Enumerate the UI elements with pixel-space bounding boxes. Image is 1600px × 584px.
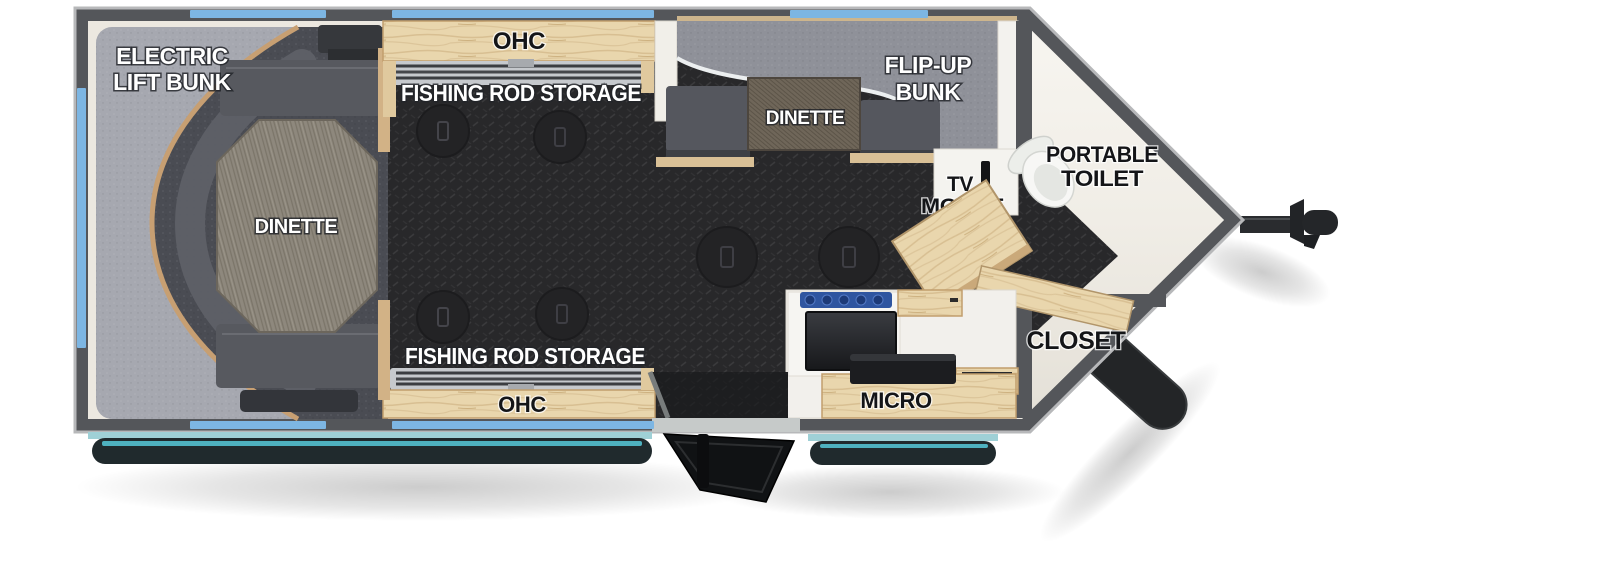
rack-end-block bbox=[641, 61, 654, 93]
rack-clip bbox=[508, 59, 534, 67]
rod-storage-bottom-label: FISHING ROD STORAGE bbox=[405, 343, 645, 369]
entry-step-texture bbox=[650, 372, 788, 418]
counter-handle bbox=[950, 298, 958, 302]
bench-base bbox=[666, 150, 750, 158]
awning-rail-right bbox=[808, 434, 998, 441]
floor-recess bbox=[417, 105, 469, 157]
micro-label: MICRO bbox=[860, 388, 932, 413]
window-strip-bottom-rear bbox=[190, 421, 326, 429]
counter bbox=[898, 290, 962, 316]
front-dinette-bench-left bbox=[666, 86, 750, 152]
microwave-top bbox=[850, 354, 956, 361]
electric-lift-bunk-label-line2: LIFT BUNK bbox=[113, 69, 232, 95]
floor-recess bbox=[536, 288, 588, 340]
rear-dinette-label: DINETTE bbox=[255, 216, 338, 238]
hitch-flange bbox=[1290, 199, 1304, 244]
flip-up-bunk-label-line2: BUNK bbox=[896, 79, 962, 105]
entry-area bbox=[650, 372, 800, 432]
floor-recess bbox=[697, 227, 757, 287]
trailer-body: ELECTRIC LIFT BUNK DINETTE OHC FISHING R… bbox=[75, 8, 1243, 432]
front-dinette-label: DINETTE bbox=[766, 108, 844, 129]
hitch-coupler bbox=[1302, 210, 1338, 235]
bunk-headrest-shadow bbox=[328, 49, 382, 60]
floor-recess bbox=[417, 291, 469, 343]
flip-up-bunk-label-line1: FLIP-UP bbox=[885, 52, 972, 78]
rack-end-block bbox=[383, 61, 396, 117]
entry-threshold bbox=[652, 418, 800, 432]
awning-rollers bbox=[88, 432, 998, 465]
kitchen-area: MICRO bbox=[786, 290, 1018, 418]
awning-roller-highlight bbox=[102, 441, 642, 446]
bunk-headrest bbox=[318, 25, 382, 53]
floorplan-image: ELECTRIC LIFT BUNK DINETTE OHC FISHING R… bbox=[0, 0, 1600, 584]
window-strip-bottom-center bbox=[392, 421, 654, 429]
window-strip-top-center bbox=[392, 10, 654, 18]
flip-up-bunk-area: FLIP-UP BUNK DINETTE bbox=[656, 16, 1018, 167]
ohc-bottom-label: OHC bbox=[498, 392, 546, 417]
floor-recess bbox=[819, 227, 879, 287]
window-strip-top-front bbox=[790, 10, 928, 18]
hitch-latch bbox=[1304, 235, 1320, 249]
floor-recess bbox=[534, 111, 586, 163]
portable-toilet-label-line2: TOILET bbox=[1061, 166, 1144, 191]
electric-lift-bunk-label-line1: ELECTRIC bbox=[116, 43, 228, 69]
window-strip-rear-wall bbox=[77, 88, 86, 348]
entry-door-hinge bbox=[697, 434, 709, 488]
bench-floor-trim bbox=[656, 157, 754, 167]
portable-toilet-label-line1: PORTABLE bbox=[1046, 142, 1158, 167]
floorplan-svg: ELECTRIC LIFT BUNK DINETTE OHC FISHING R… bbox=[0, 0, 1600, 584]
partition-wall-upper bbox=[1016, 21, 1032, 149]
window-strip-top-rear bbox=[190, 10, 326, 18]
bench-floor-trim bbox=[850, 153, 942, 163]
awning-roller-highlight bbox=[820, 444, 988, 448]
front-wardrobe bbox=[998, 21, 1018, 149]
partition-wall-lower bbox=[1016, 296, 1032, 418]
ohc-top-label: OHC bbox=[493, 28, 545, 55]
bunk-footrest bbox=[240, 390, 358, 412]
awning-rail-left bbox=[88, 432, 652, 439]
bunk-side-trim bbox=[378, 300, 390, 400]
front-dinette-bench-right bbox=[860, 100, 940, 152]
rod-storage-top-label: FISHING ROD STORAGE bbox=[401, 80, 641, 106]
closet-label: CLOSET bbox=[1027, 327, 1126, 355]
electric-lift-bunk-area: ELECTRIC LIFT BUNK DINETTE bbox=[96, 25, 390, 419]
